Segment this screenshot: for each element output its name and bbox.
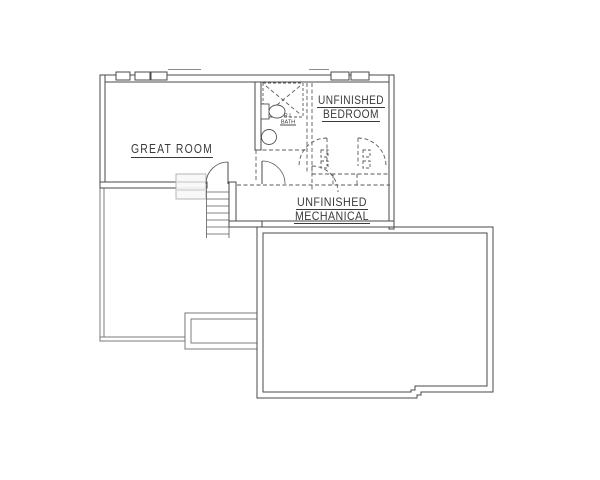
future-door-jamb-block	[363, 150, 370, 157]
garage	[257, 227, 493, 398]
stairs-above-faint-box	[176, 174, 206, 199]
toilet-tank-icon	[261, 104, 269, 119]
wall-segment-bath-west	[255, 82, 261, 150]
wall-segment-stair-east	[229, 182, 236, 227]
stoop-bump-out	[185, 313, 262, 349]
window-bedroom-2	[351, 72, 369, 80]
mechanical-label-line1: UNFINISHED	[297, 195, 367, 209]
bedroom-label-line2: BEDROOM	[323, 109, 379, 121]
wall-segment-west-lower	[100, 188, 104, 341]
great-room-label: GREAT ROOM	[131, 141, 213, 158]
wall-segment-south-lower	[100, 337, 188, 341]
toilet-bowl-icon	[269, 105, 285, 118]
future-door-jamb-block	[363, 161, 370, 168]
floor-plan-drawing: R.I. BATH GREAT ROOM UNFINISHED BEDROOM …	[0, 0, 600, 480]
floor-plan-page: R.I. BATH GREAT ROOM UNFINISHED BEDROOM …	[0, 0, 600, 480]
garage-inner-wall	[263, 233, 487, 392]
bedroom-label-line1: UNFINISHED	[318, 95, 384, 107]
mechanical-label-line2: MECHANICAL	[295, 209, 369, 223]
window-great-room-3	[151, 72, 167, 80]
window-bedroom-1	[331, 72, 349, 80]
bedroom-label: UNFINISHED BEDROOM	[317, 95, 385, 122]
mechanical-label: UNFINISHED MECHANICAL	[294, 195, 370, 224]
window-great-room-2	[135, 72, 150, 80]
bath-label-line1: R.I.	[284, 113, 293, 119]
wall-segment-stair-jog	[229, 221, 262, 227]
great-room-label-text: GREAT ROOM	[131, 141, 213, 156]
sink-icon	[262, 130, 277, 145]
stoop-outer-wall	[185, 313, 262, 349]
wall-segment-west-upper	[100, 75, 105, 188]
wall-segment-east	[389, 75, 394, 229]
window-great-room-1	[116, 72, 130, 80]
